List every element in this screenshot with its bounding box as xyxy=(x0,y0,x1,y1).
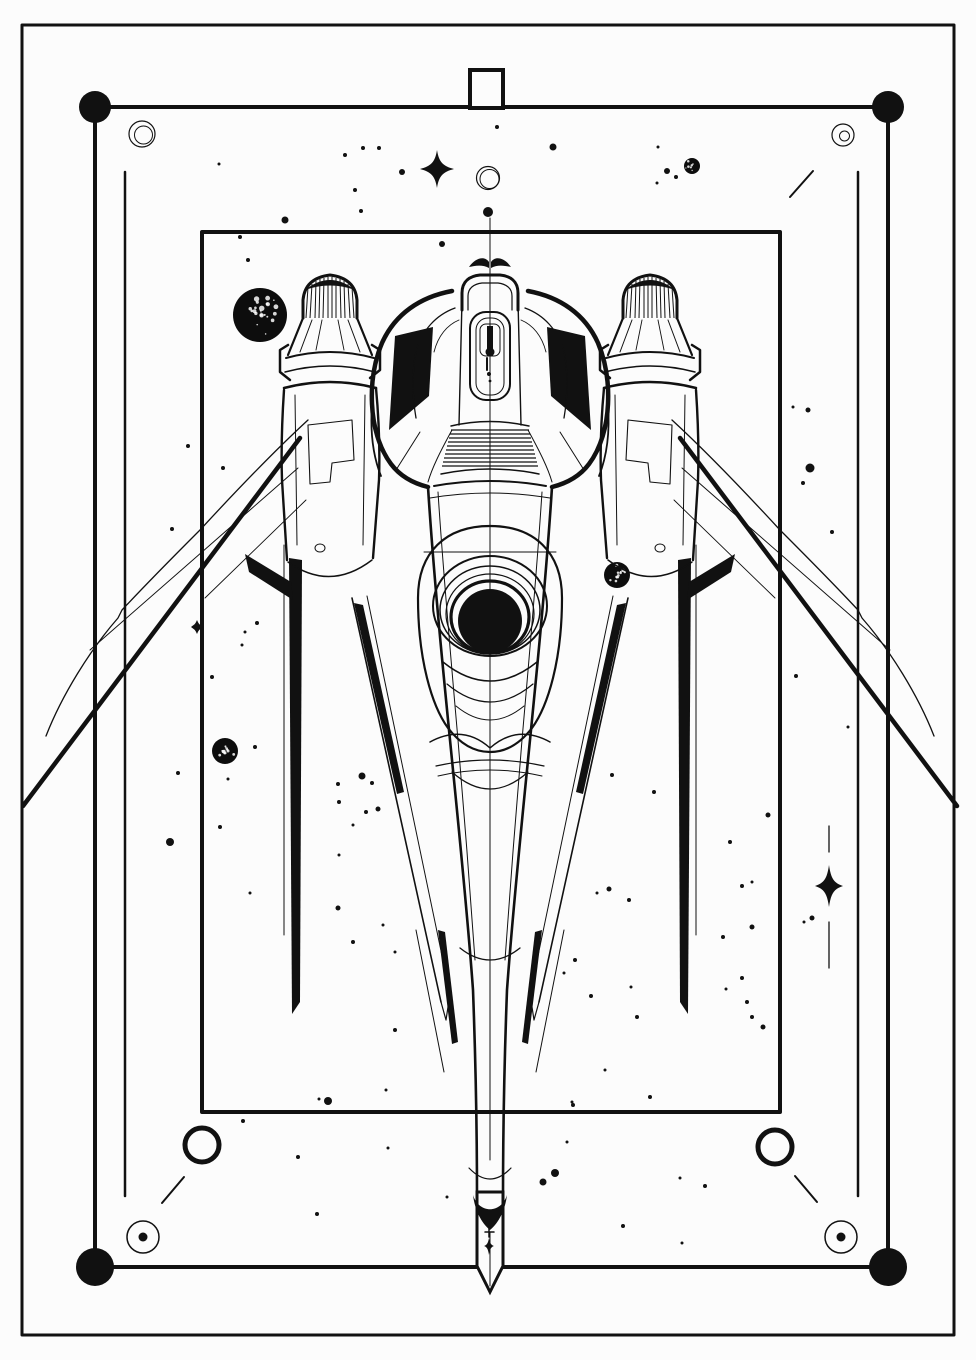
frame-corner-dot xyxy=(872,91,904,123)
illustration-canvas: Spaceship line-art coloring page xyxy=(0,0,976,1360)
tail-spike xyxy=(469,1168,511,1292)
antenna-wing xyxy=(469,258,489,268)
frame-corner-dot xyxy=(76,1248,114,1286)
frame-top-tab xyxy=(470,70,503,108)
spaceship xyxy=(23,218,957,1292)
booster-pod xyxy=(280,275,380,577)
antenna-wing xyxy=(491,258,511,268)
coloring-page: Spaceship line-art coloring page xyxy=(0,0,976,1360)
pod-fin xyxy=(280,345,290,380)
wing-wedge xyxy=(245,554,293,600)
inner-panel xyxy=(202,232,780,1112)
canopy-panel xyxy=(389,327,433,430)
wing-blade xyxy=(289,558,302,1014)
outer-border xyxy=(22,25,954,1335)
frame-corner-dot xyxy=(79,91,111,123)
frame-corner-dot xyxy=(869,1248,907,1286)
pod-panel xyxy=(308,420,354,484)
four-point-stars xyxy=(191,150,843,968)
engine-core xyxy=(458,589,522,653)
